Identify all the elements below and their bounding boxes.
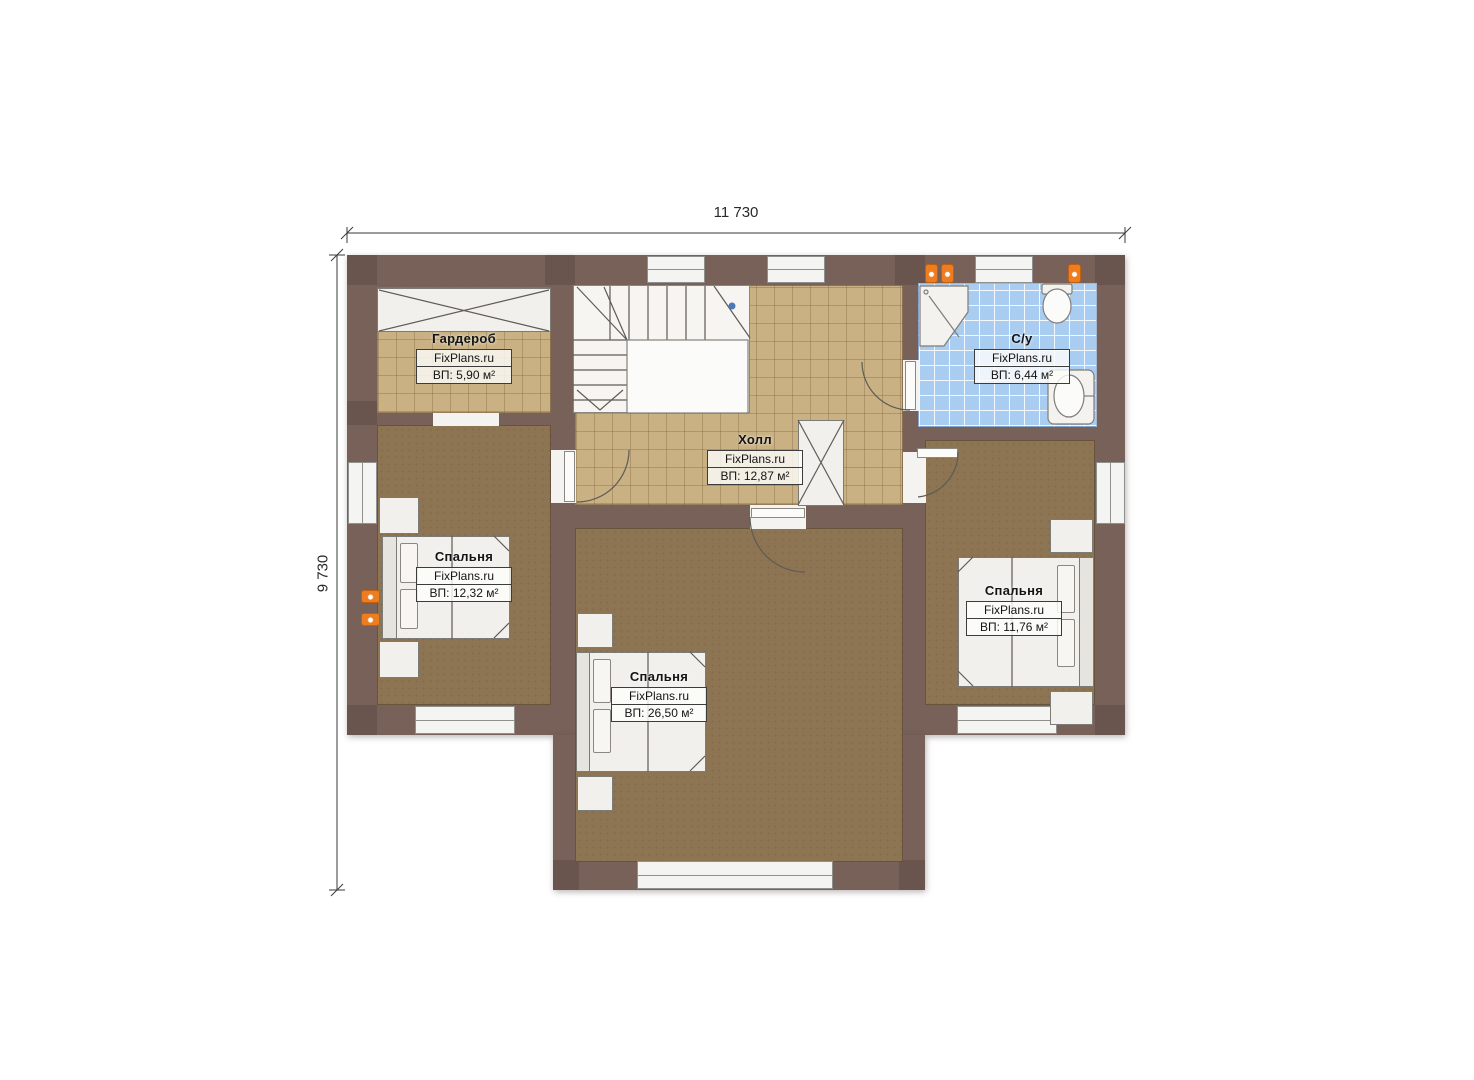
watermark: FixPlans.ru [417, 568, 511, 585]
wall-lamp-icon [361, 590, 380, 603]
room-info-box: FixPlans.ru ВП: 6,44 м² [974, 349, 1070, 384]
nightstand [379, 497, 419, 534]
nightstand [1050, 519, 1093, 553]
bed-headboard [576, 652, 590, 772]
floor-plan: Гардероб FixPlans.ru ВП: 5,90 м² Холл Fi… [0, 0, 1474, 1080]
wall-lamp-icon [925, 264, 938, 283]
nightstand [577, 776, 613, 811]
wardrobe-opening [433, 413, 499, 426]
bed-headboard [1079, 557, 1094, 687]
room-name: Гардероб [404, 331, 524, 346]
room-area: ВП: 12,87 м² [708, 468, 802, 484]
room-area: ВП: 11,76 м² [967, 619, 1061, 635]
room-info-box: FixPlans.ru ВП: 5,90 м² [416, 349, 512, 384]
bedroom-right-doorway [903, 452, 926, 503]
wall-pier [347, 255, 377, 285]
bed-headboard [382, 536, 397, 639]
wall-pier [545, 255, 575, 285]
watermark: FixPlans.ru [612, 688, 706, 705]
room-label-hall: Холл FixPlans.ru ВП: 12,87 м² [695, 432, 815, 485]
room-info-box: FixPlans.ru ВП: 26,50 м² [611, 687, 707, 722]
room-info-box: FixPlans.ru ВП: 11,76 м² [966, 601, 1062, 636]
wardrobe-shelving [377, 288, 551, 332]
window [348, 462, 377, 524]
wall-lamp-icon [941, 264, 954, 283]
room-area: ВП: 12,32 м² [417, 585, 511, 601]
room-info-box: FixPlans.ru ВП: 12,87 м² [707, 450, 803, 485]
watermark: FixPlans.ru [417, 350, 511, 367]
window [1096, 462, 1125, 524]
room-name: Спальня [404, 549, 524, 564]
window [767, 256, 825, 283]
stairwell-floor [573, 285, 750, 413]
dimension-width: 11 730 [676, 204, 796, 221]
dimension-height: 9 730 [315, 543, 332, 605]
nightstand [379, 641, 419, 678]
nightstand [1050, 691, 1093, 725]
room-name: Холл [695, 432, 815, 447]
wall-pier [553, 860, 579, 890]
room-label-bedroom-right: Спальня FixPlans.ru ВП: 11,76 м² [954, 583, 1074, 636]
wall-pier [347, 401, 377, 425]
room-area: ВП: 6,44 м² [975, 367, 1069, 383]
room-label-bathroom: С/у FixPlans.ru ВП: 6,44 м² [962, 331, 1082, 384]
wall-pier [899, 860, 925, 890]
window [975, 256, 1033, 283]
wall-lamp-icon [361, 613, 380, 626]
bathroom-door [905, 361, 916, 410]
watermark: FixPlans.ru [967, 602, 1061, 619]
bedroom-right-door [917, 448, 958, 458]
window [957, 706, 1057, 734]
room-name: Спальня [599, 669, 719, 684]
wall-pier [1095, 255, 1125, 285]
bedroom-main-door [751, 508, 805, 518]
watermark: FixPlans.ru [708, 451, 802, 468]
watermark: FixPlans.ru [975, 350, 1069, 367]
wall-lamp-icon [1068, 264, 1081, 283]
bedroom-left-door [564, 451, 575, 502]
room-label-wardrobe: Гардероб FixPlans.ru ВП: 5,90 м² [404, 331, 524, 384]
room-name: Спальня [954, 583, 1074, 598]
room-info-box: FixPlans.ru ВП: 12,32 м² [416, 567, 512, 602]
nightstand [577, 613, 613, 648]
window-large [637, 861, 833, 889]
room-label-bedroom-main: Спальня FixPlans.ru ВП: 26,50 м² [599, 669, 719, 722]
window [647, 256, 705, 283]
wall-pier [1095, 705, 1125, 735]
wall-pier [347, 705, 377, 735]
room-area: ВП: 26,50 м² [612, 705, 706, 721]
room-area: ВП: 5,90 м² [417, 367, 511, 383]
wall-pier [895, 255, 925, 285]
window [415, 706, 515, 734]
room-label-bedroom-left: Спальня FixPlans.ru ВП: 12,32 м² [404, 549, 524, 602]
room-name: С/у [962, 331, 1082, 346]
